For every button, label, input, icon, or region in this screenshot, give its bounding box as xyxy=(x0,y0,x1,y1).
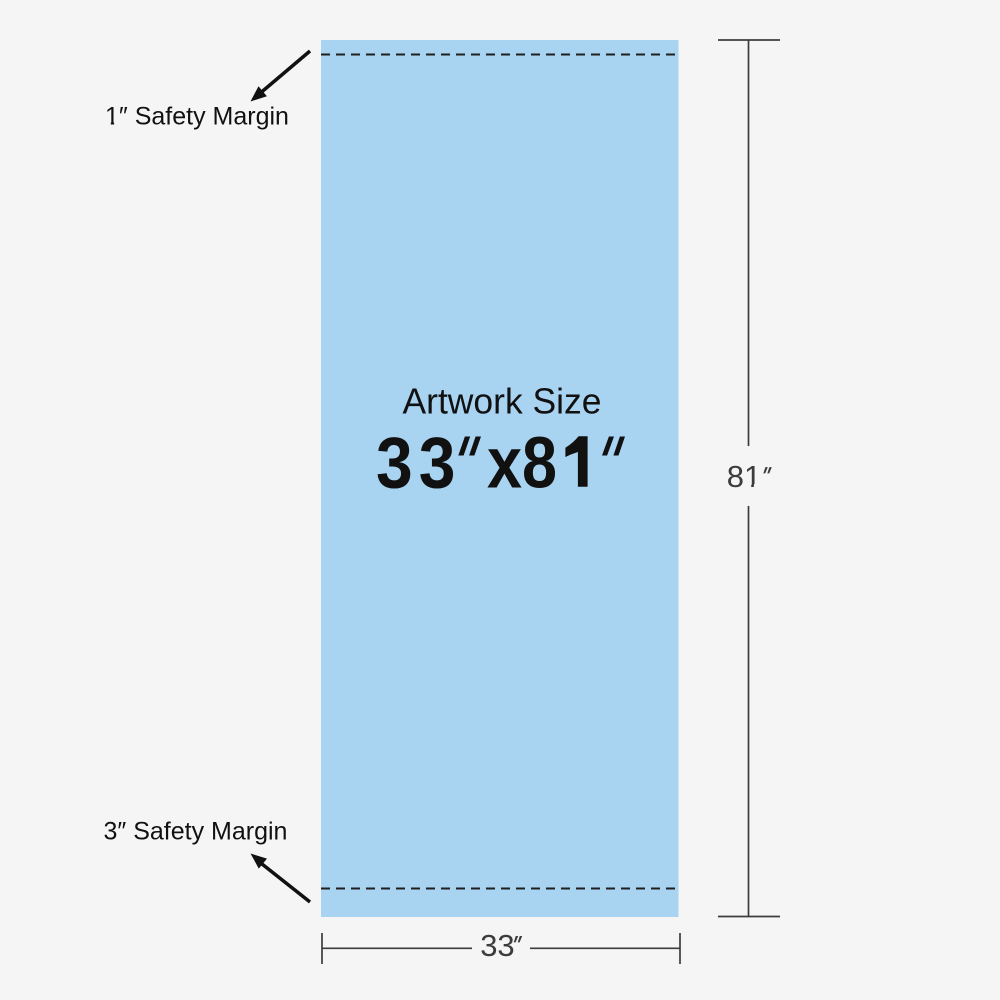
svg-text:x8: x8 xyxy=(487,423,557,503)
svg-text:3″ Safety Margin: 3″ Safety Margin xyxy=(104,818,288,846)
svg-text:Artwork Size: Artwork Size xyxy=(403,381,602,422)
svg-text:33: 33 xyxy=(376,423,461,503)
svg-text:33: 33 xyxy=(480,928,514,963)
svg-text:81: 81 xyxy=(727,459,761,494)
svg-text:1″ Safety Margin: 1″ Safety Margin xyxy=(105,103,289,131)
